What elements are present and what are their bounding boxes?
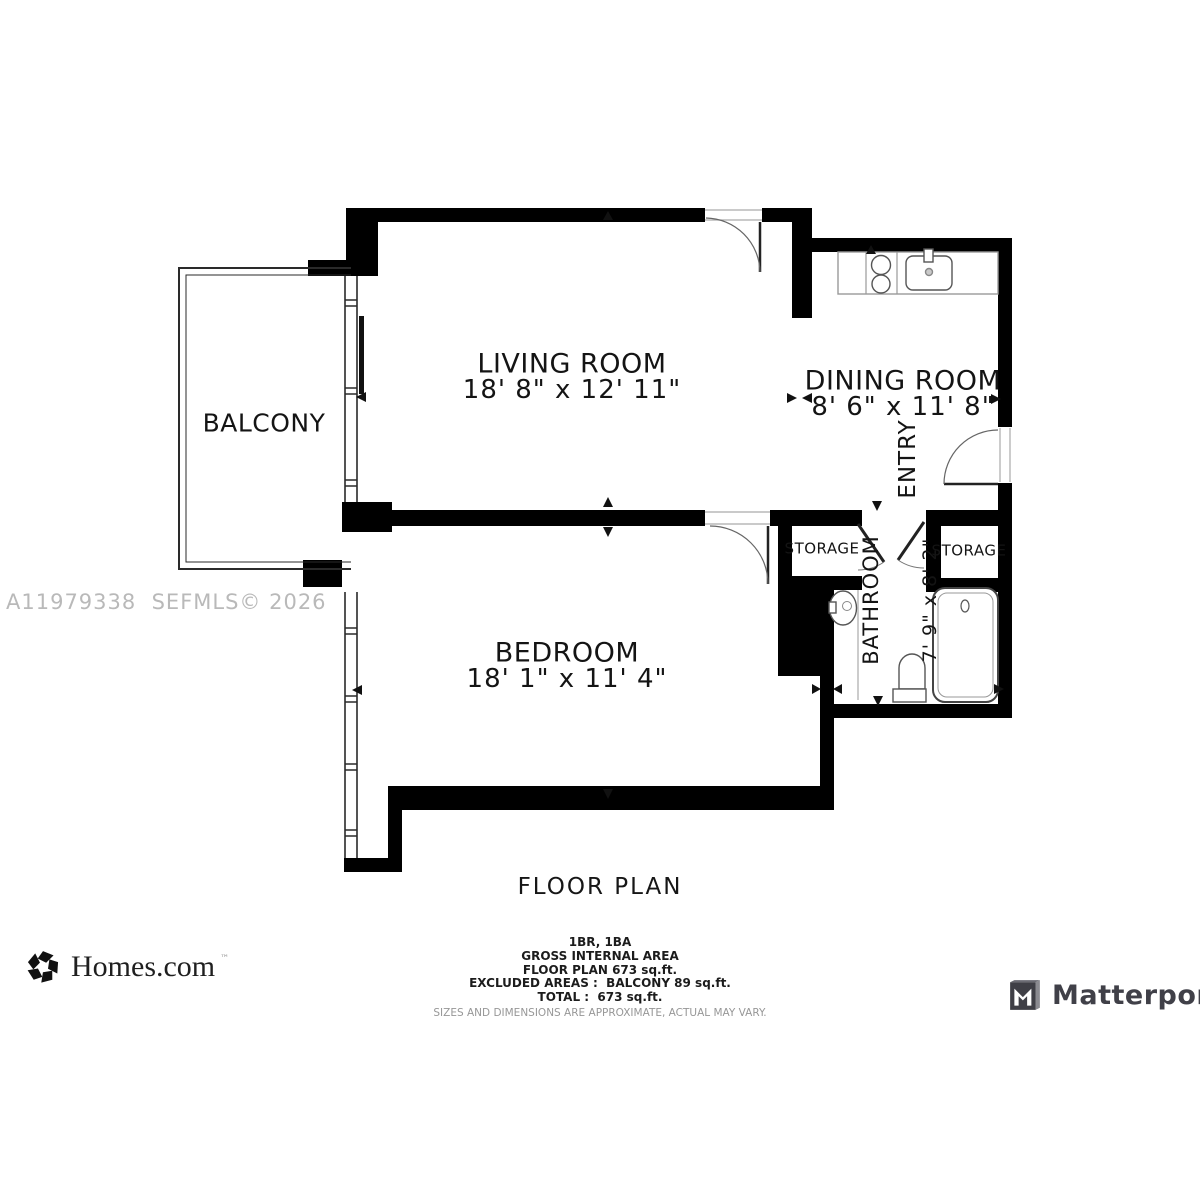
window-living bbox=[345, 276, 357, 502]
matterport-logo-text: Matterport bbox=[1052, 980, 1200, 1011]
door-entry bbox=[944, 430, 998, 484]
summary-excluded: EXCLUDED AREAS : BALCONY 89 sq.ft. bbox=[433, 977, 766, 991]
summary-area-heading: GROSS INTERNAL AREA bbox=[433, 950, 766, 964]
summary-floor-area: FLOOR PLAN 673 sq.ft. bbox=[433, 964, 766, 978]
door-living bbox=[706, 218, 760, 272]
bathroom-name: BATHROOM bbox=[859, 535, 883, 665]
summary-disclaimer: SIZES AND DIMENSIONS ARE APPROXIMATE, AC… bbox=[433, 1007, 766, 1021]
matterport-logo-icon bbox=[1008, 978, 1042, 1012]
living-room-dims: 18' 8" x 12' 11" bbox=[463, 376, 681, 406]
entry-label: ENTRY bbox=[895, 419, 921, 498]
balcony-slider-door bbox=[359, 316, 364, 394]
summary-total: TOTAL : 673 sq.ft. bbox=[433, 991, 766, 1005]
kitchen-counter bbox=[838, 249, 998, 294]
homes-logo-text: Homes.com bbox=[71, 950, 215, 984]
bathroom-dims: 7' 9" x 8' 2" bbox=[920, 535, 942, 665]
opening-arrows bbox=[352, 211, 1004, 799]
mls-watermark: A11979338 SEFMLS© 2026 bbox=[6, 590, 327, 614]
homes-logo-icon bbox=[24, 948, 62, 986]
bathroom-label: BATHROOM 7' 9" x 8' 2" bbox=[822, 535, 978, 665]
window-bedroom bbox=[345, 592, 357, 858]
homes-trademark: ™ bbox=[220, 954, 229, 964]
door-bedroom bbox=[710, 526, 768, 584]
homes-logo: Homes.com ™ bbox=[24, 948, 229, 986]
summary-beds-baths: 1BR, 1BA bbox=[433, 936, 766, 950]
balcony-label: BALCONY bbox=[203, 410, 326, 439]
plan-title: FLOOR PLAN bbox=[518, 874, 683, 900]
floor-plan-page: LIVING ROOM 18' 8" x 12' 11" DINING ROOM… bbox=[0, 0, 1200, 1200]
matterport-logo: Matterport bbox=[1008, 978, 1200, 1012]
plan-summary: 1BR, 1BA GROSS INTERNAL AREA FLOOR PLAN … bbox=[433, 936, 766, 1021]
bedroom-dims: 18' 1" x 11' 4" bbox=[467, 665, 668, 695]
